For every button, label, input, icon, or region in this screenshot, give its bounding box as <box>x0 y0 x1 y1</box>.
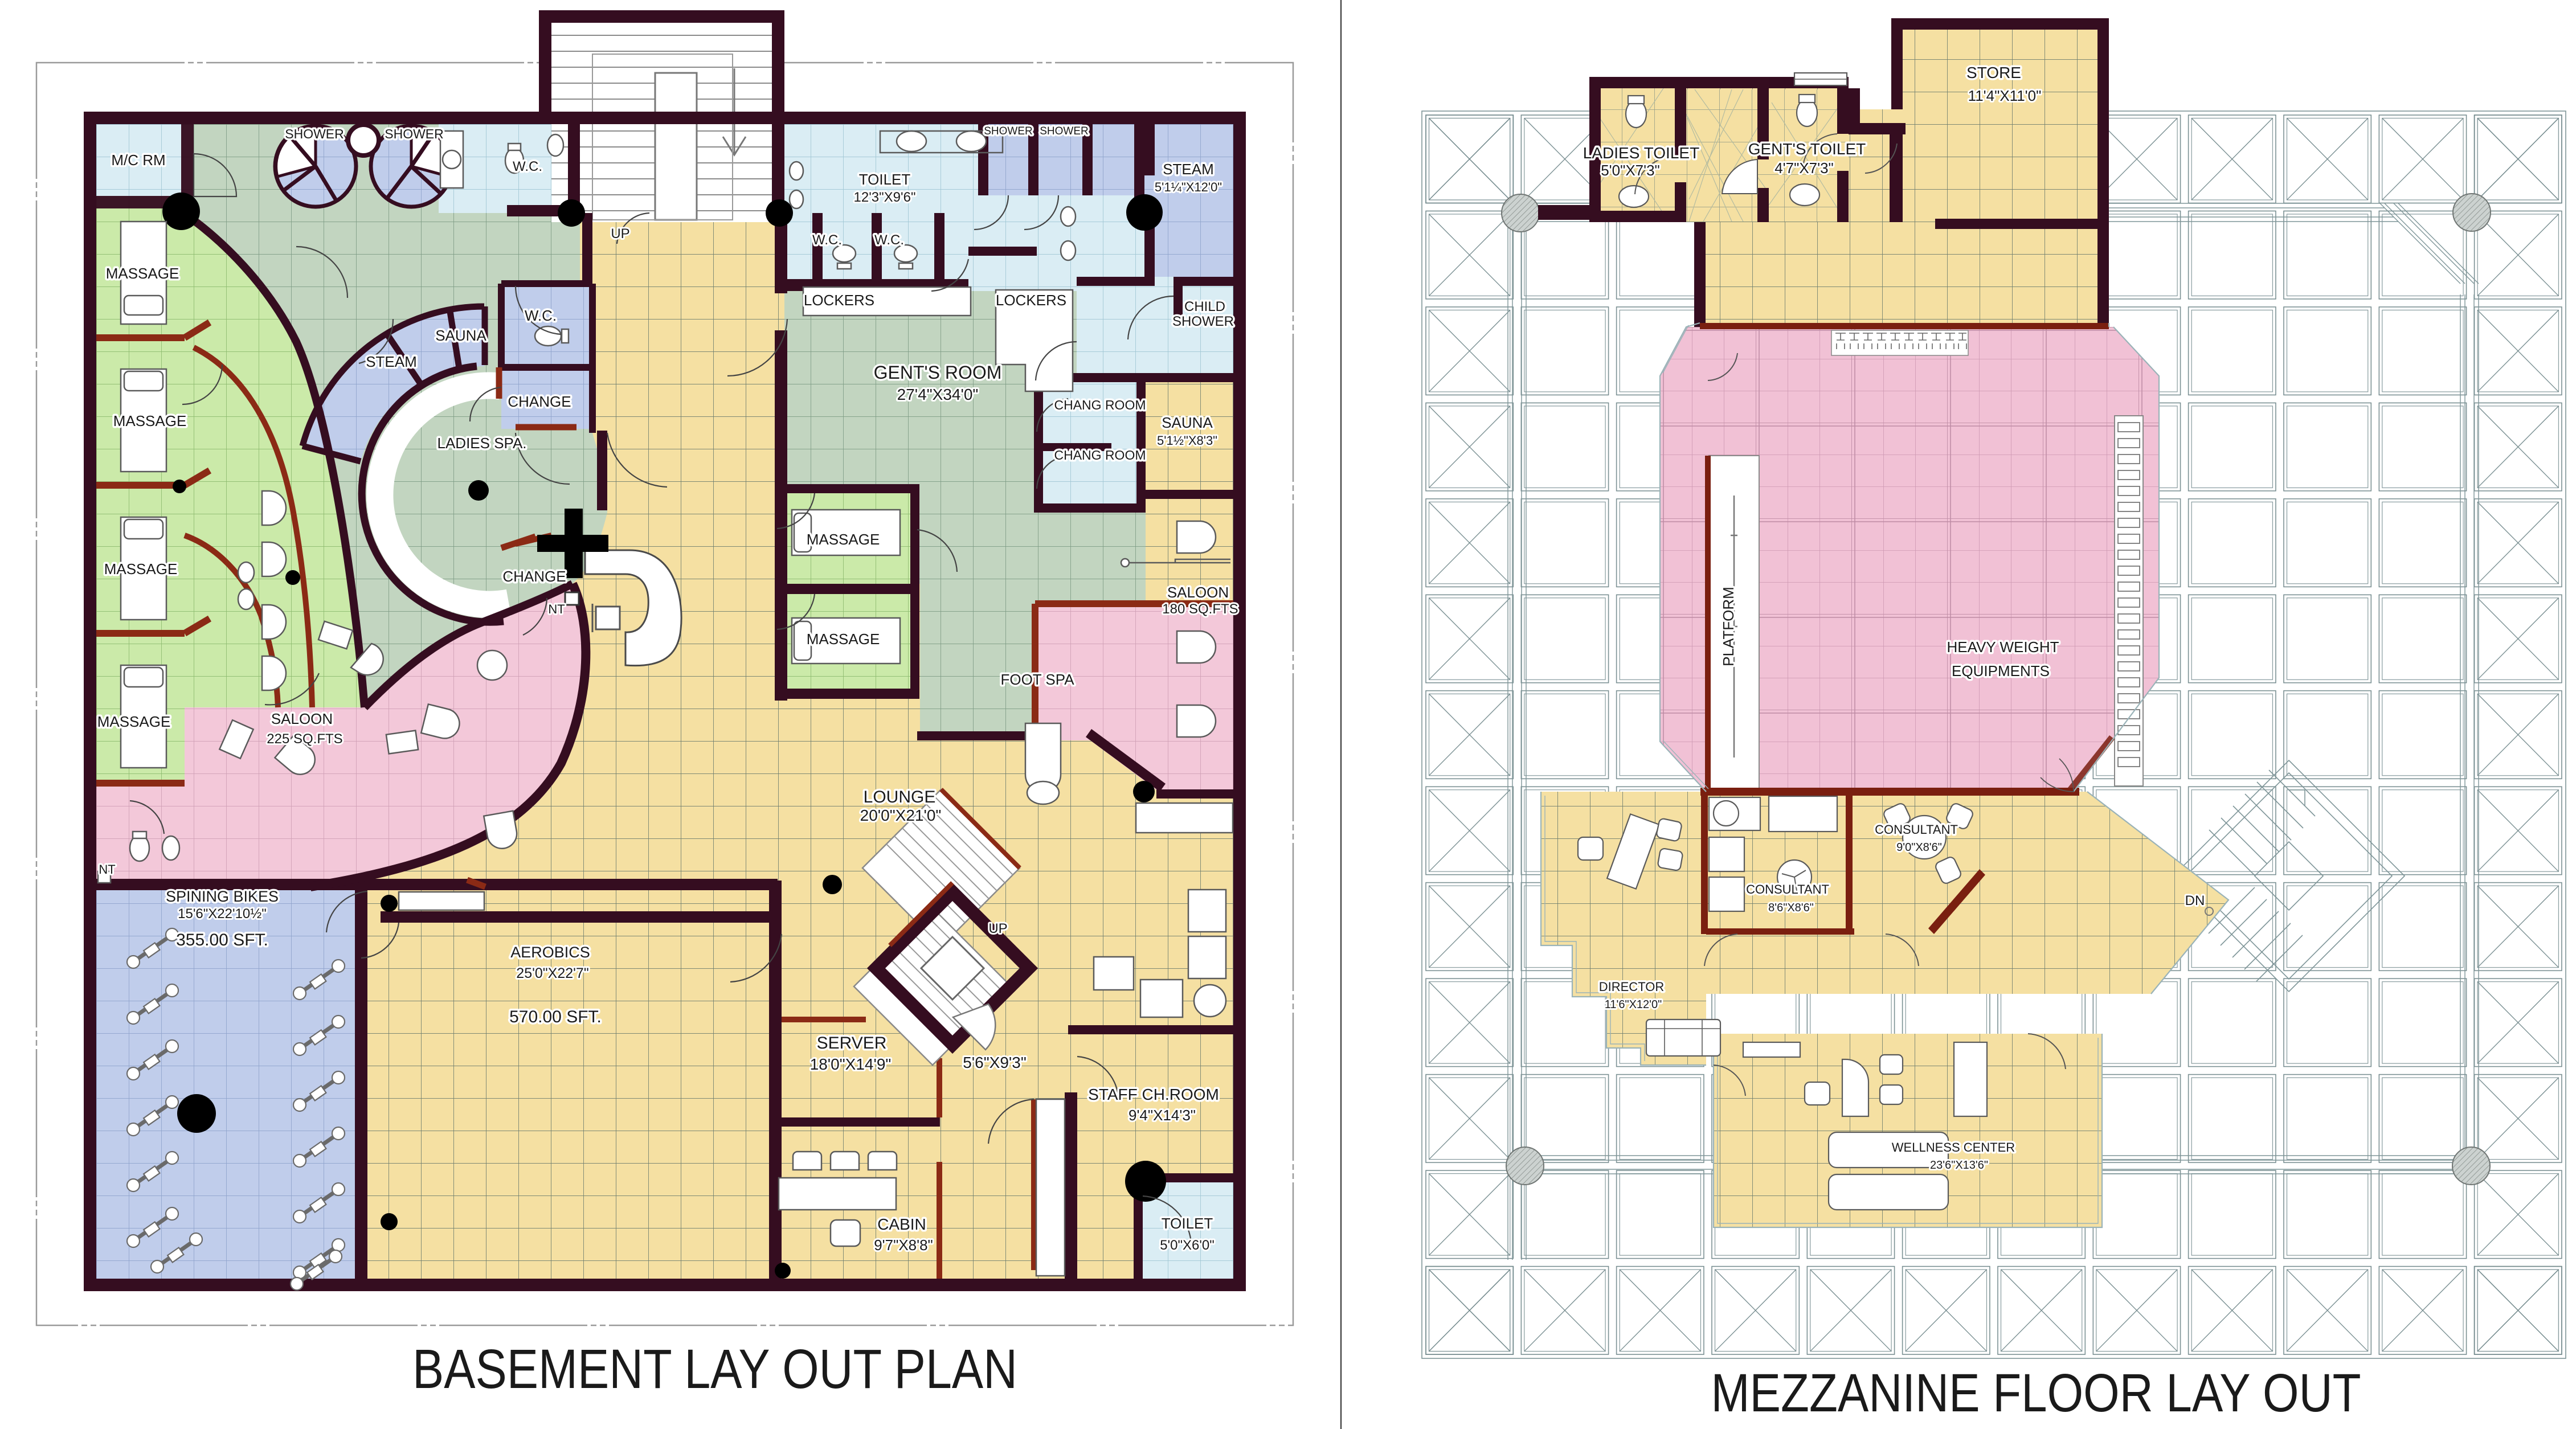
svg-text:15'6"X22'10½": 15'6"X22'10½" <box>178 906 267 922</box>
svg-text:CHANG ROOM: CHANG ROOM <box>1054 448 1146 462</box>
svg-text:MASSAGE: MASSAGE <box>97 713 171 730</box>
svg-text:MASSAGE: MASSAGE <box>113 412 187 429</box>
svg-text:180 SQ.FTS: 180 SQ.FTS <box>1162 601 1238 617</box>
svg-text:5'6"X9'3": 5'6"X9'3" <box>963 1054 1027 1071</box>
svg-text:8'6"X8'6": 8'6"X8'6" <box>1768 902 1814 914</box>
svg-text:9'0"X8'6": 9'0"X8'6" <box>1896 841 1942 854</box>
svg-text:UP: UP <box>988 921 1007 936</box>
svg-text:AEROBICS: AEROBICS <box>510 944 590 961</box>
svg-text:PLATFORM: PLATFORM <box>1720 587 1737 666</box>
svg-text:9'7"X8'8": 9'7"X8'8" <box>874 1236 933 1254</box>
svg-text:5'0"X7'3": 5'0"X7'3" <box>1601 162 1660 179</box>
svg-text:STEAM: STEAM <box>366 353 417 370</box>
svg-text:EQUIPMENTS: EQUIPMENTS <box>1952 662 2050 679</box>
svg-text:SAUNA: SAUNA <box>1162 414 1213 431</box>
svg-text:CABIN: CABIN <box>877 1215 926 1233</box>
svg-text:MASSAGE: MASSAGE <box>104 560 178 578</box>
svg-text:UP: UP <box>611 226 629 241</box>
svg-text:SHOWER: SHOWER <box>285 126 344 141</box>
svg-text:DIRECTOR: DIRECTOR <box>1599 980 1665 994</box>
svg-text:SALOON: SALOON <box>1167 584 1229 601</box>
svg-text:SHOWER: SHOWER <box>1172 314 1234 329</box>
svg-text:355.00 SFT.: 355.00 SFT. <box>176 931 268 949</box>
svg-text:W.C.: W.C. <box>525 307 557 324</box>
svg-text:TOILET: TOILET <box>859 171 911 188</box>
svg-text:CONSULTANT: CONSULTANT <box>1746 882 1829 896</box>
svg-text:MEZZANINE FLOOR LAY OUT: MEZZANINE FLOOR LAY OUT <box>1711 1363 2361 1423</box>
svg-text:GENT'S TOILET: GENT'S TOILET <box>1748 140 1866 158</box>
svg-text:SHOWER: SHOWER <box>1040 125 1089 137</box>
svg-text:M/C RM: M/C RM <box>111 152 165 169</box>
svg-text:11'6"X12'0": 11'6"X12'0" <box>1605 998 1662 1011</box>
svg-text:LADIES TOILET: LADIES TOILET <box>1583 144 1699 162</box>
svg-text:BASEMENT LAY OUT PLAN: BASEMENT LAY OUT PLAN <box>412 1338 1017 1400</box>
svg-text:570.00 SFT.: 570.00 SFT. <box>509 1008 602 1026</box>
svg-text:12'3"X9'6": 12'3"X9'6" <box>854 190 916 205</box>
svg-text:23'6"X13'6": 23'6"X13'6" <box>1930 1159 1988 1172</box>
svg-text:STAFF CH.ROOM: STAFF CH.ROOM <box>1088 1086 1219 1103</box>
svg-text:27'4"X34'0": 27'4"X34'0" <box>897 386 979 403</box>
svg-text:LOCKERS: LOCKERS <box>804 292 874 309</box>
svg-text:HEAVY WEIGHT: HEAVY WEIGHT <box>1947 638 2059 656</box>
svg-text:CHANGE: CHANGE <box>508 393 571 410</box>
svg-text:CONSULTANT: CONSULTANT <box>1875 822 1958 837</box>
svg-text:5'0"X6'0": 5'0"X6'0" <box>1160 1238 1215 1253</box>
svg-text:STEAM: STEAM <box>1163 161 1214 178</box>
svg-text:NT: NT <box>548 602 565 616</box>
svg-text:LOCKERS: LOCKERS <box>996 292 1066 309</box>
svg-text:FOOT SPA: FOOT SPA <box>1000 671 1074 688</box>
svg-text:18'0"X14'9": 18'0"X14'9" <box>810 1055 892 1073</box>
svg-text:CHANGE: CHANGE <box>502 568 566 585</box>
svg-text:SAUNA: SAUNA <box>435 327 486 344</box>
svg-text:25'0"X22'7": 25'0"X22'7" <box>516 965 588 981</box>
svg-text:TOILET: TOILET <box>1162 1215 1213 1232</box>
svg-text:SHOWER: SHOWER <box>984 125 1033 137</box>
svg-text:W.C.: W.C. <box>874 232 904 248</box>
svg-text:GENT'S ROOM: GENT'S ROOM <box>874 362 1002 383</box>
svg-text:STORE: STORE <box>1966 64 2021 81</box>
svg-text:225 SQ.FTS: 225 SQ.FTS <box>267 731 342 747</box>
svg-text:NT: NT <box>99 862 115 877</box>
svg-text:MASSAGE: MASSAGE <box>106 265 179 282</box>
svg-text:LADIES SPA.: LADIES SPA. <box>437 435 526 452</box>
svg-text:W.C.: W.C. <box>513 159 542 174</box>
svg-text:DN: DN <box>2185 893 2205 908</box>
svg-text:9'4"X14'3": 9'4"X14'3" <box>1128 1107 1196 1124</box>
svg-text:SALOON: SALOON <box>271 710 333 727</box>
svg-text:4'7"X7'3": 4'7"X7'3" <box>1774 159 1834 177</box>
svg-text:CHANG ROOM: CHANG ROOM <box>1054 398 1146 412</box>
svg-text:5'1¼"X12'0": 5'1¼"X12'0" <box>1155 180 1222 194</box>
svg-text:5'1½"X8'3": 5'1½"X8'3" <box>1157 433 1217 448</box>
svg-text:WELLNESS CENTER: WELLNESS CENTER <box>1892 1140 2015 1154</box>
svg-text:SERVER: SERVER <box>817 1034 887 1053</box>
svg-text:W.C.: W.C. <box>812 232 842 248</box>
svg-text:CHILD: CHILD <box>1184 299 1225 314</box>
svg-text:20'0"X21'0": 20'0"X21'0" <box>860 806 942 824</box>
svg-text:LOUNGE: LOUNGE <box>864 788 936 806</box>
svg-text:11'4"X11'0": 11'4"X11'0" <box>1968 87 2042 104</box>
svg-text:MASSAGE: MASSAGE <box>807 531 880 548</box>
svg-text:SHOWER: SHOWER <box>385 126 444 141</box>
svg-text:SPINING BIKES: SPINING BIKES <box>166 888 279 905</box>
svg-text:MASSAGE: MASSAGE <box>807 630 880 648</box>
